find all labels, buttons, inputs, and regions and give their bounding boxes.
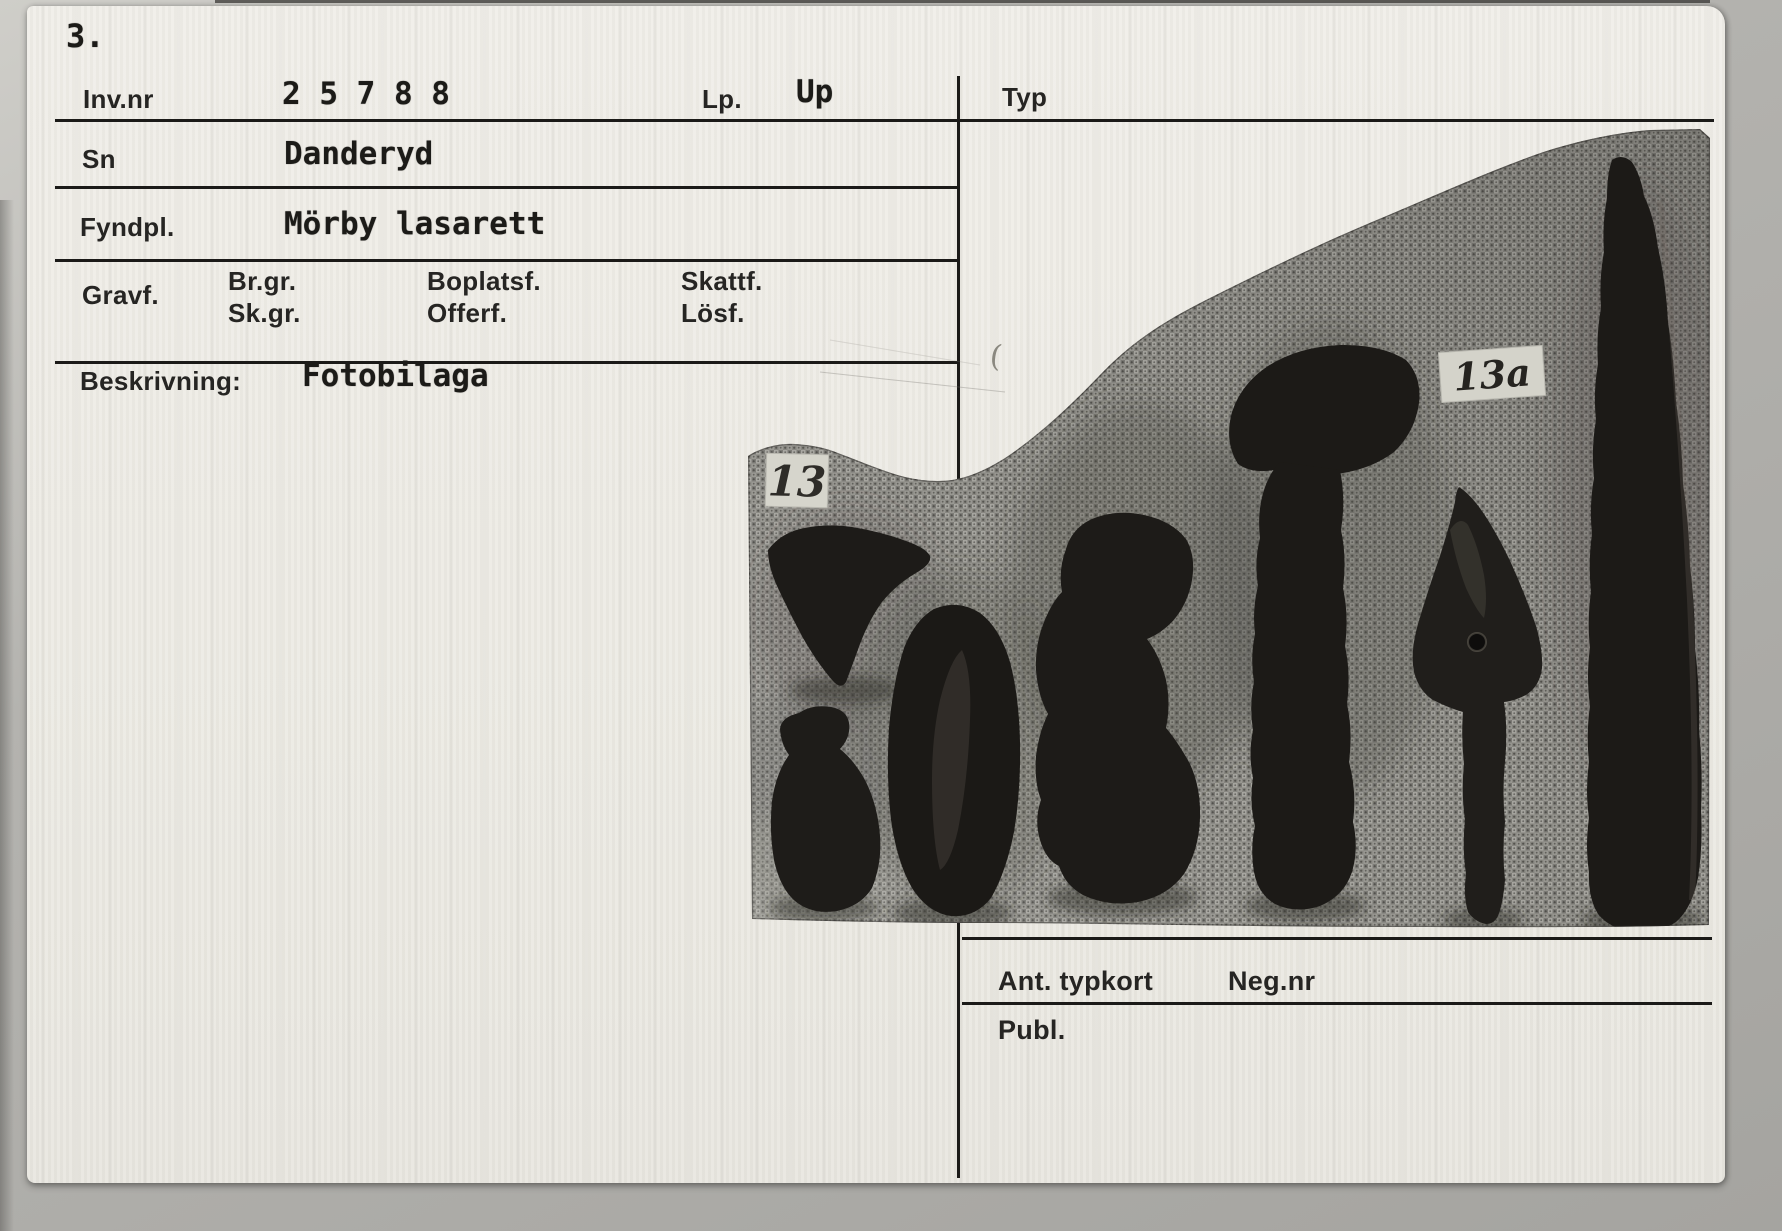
field-label-negnr: Neg.nr (1228, 967, 1315, 995)
field-value-fyndpl: Mörby lasarett (284, 208, 545, 241)
field-label-lp: Lp. (702, 86, 742, 113)
scan-edge-line (215, 0, 1710, 3)
photo-tag-13a: 13a (1438, 345, 1545, 402)
field-label-boplatsf: Boplatsf. (427, 268, 541, 295)
field-value-beskrivning: Fotobilaga (302, 360, 489, 393)
field-label-losf: Lösf. (681, 300, 745, 327)
field-label-beskrivning: Beskrivning: (80, 368, 241, 395)
photo-area: 13 13a (740, 104, 1718, 938)
photo-tag-13: 13 (765, 453, 828, 508)
scanned-catalog-card: 3. Inv.nr Lp. Typ Sn Fyndpl. Gravf. Br.g… (0, 0, 1782, 1231)
spearhead-rivet-hole (1468, 633, 1486, 651)
field-label-publ: Publ. (998, 1016, 1066, 1044)
field-label-brgr: Br.gr. (228, 268, 296, 295)
photo-tag-13-label: 13 (767, 456, 827, 507)
field-label-gravf: Gravf. (82, 282, 159, 309)
field-label-skgr: Sk.gr. (228, 300, 301, 327)
field-label-anttypkort: Ant. typkort (998, 967, 1153, 995)
artifact-photograph: 13 13a (740, 104, 1718, 938)
field-value-invnr: 2 5 7 8 8 (282, 78, 450, 111)
field-label-offerf: Offerf. (427, 300, 507, 327)
scratch-mark (820, 372, 1005, 392)
rule-under-anttypkort (962, 1002, 1712, 1005)
field-label-invnr: Inv.nr (83, 86, 154, 113)
field-label-fyndpl: Fyndpl. (80, 214, 175, 241)
page-number: 3. (66, 20, 105, 54)
scratch-mark (830, 340, 980, 365)
scan-edge-shade (0, 200, 14, 1231)
artifact-curved-cap-column (1251, 462, 1356, 910)
photo-tag-13a-label: 13a (1452, 349, 1532, 399)
field-label-sn: Sn (82, 146, 116, 173)
field-value-sn: Danderyd (284, 138, 433, 171)
